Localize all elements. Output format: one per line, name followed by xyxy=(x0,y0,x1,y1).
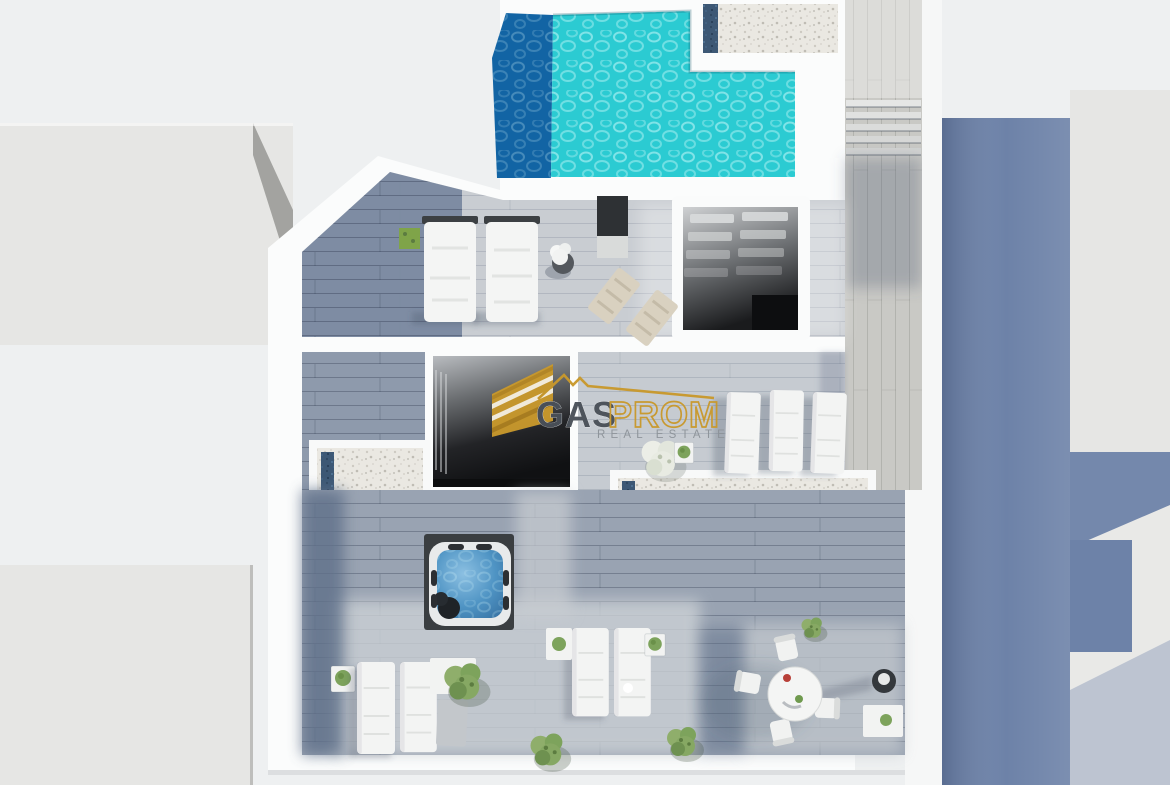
roof-hatch-door xyxy=(597,196,628,236)
door-mat xyxy=(597,236,628,258)
sun-lounger xyxy=(810,392,847,474)
walkway-parapet xyxy=(922,0,942,490)
watermark-tagline: REAL ESTATE xyxy=(597,429,730,441)
right-side-structures xyxy=(942,90,1170,785)
sun-lounger xyxy=(769,390,804,472)
neighbor-building-top-left xyxy=(0,123,293,345)
plant-pot-table xyxy=(674,442,693,463)
sun-lounger xyxy=(357,662,395,754)
sun-lounger xyxy=(572,628,609,716)
jacuzzi xyxy=(424,534,514,630)
stairwell-skylight xyxy=(672,196,810,340)
plant-cube xyxy=(399,228,420,249)
render-canvas: GAS PROM REAL ESTATE xyxy=(0,0,1170,785)
wall-shadow-step xyxy=(1070,540,1132,652)
dining-table xyxy=(768,667,822,721)
sun-lounger xyxy=(484,216,540,322)
neighbor-building-bottom-left xyxy=(0,565,253,785)
gravel-roof-top xyxy=(703,4,838,53)
parapet-outer-shadow xyxy=(268,770,908,775)
jacuzzi-side-table xyxy=(546,628,572,660)
neighbor-building-right xyxy=(1070,90,1170,452)
sun-lounger xyxy=(422,216,478,322)
table-item-red xyxy=(783,674,791,682)
stairwell-dark-corner xyxy=(752,295,798,330)
table-item-green xyxy=(795,695,803,703)
plant-pot-table xyxy=(645,634,665,656)
